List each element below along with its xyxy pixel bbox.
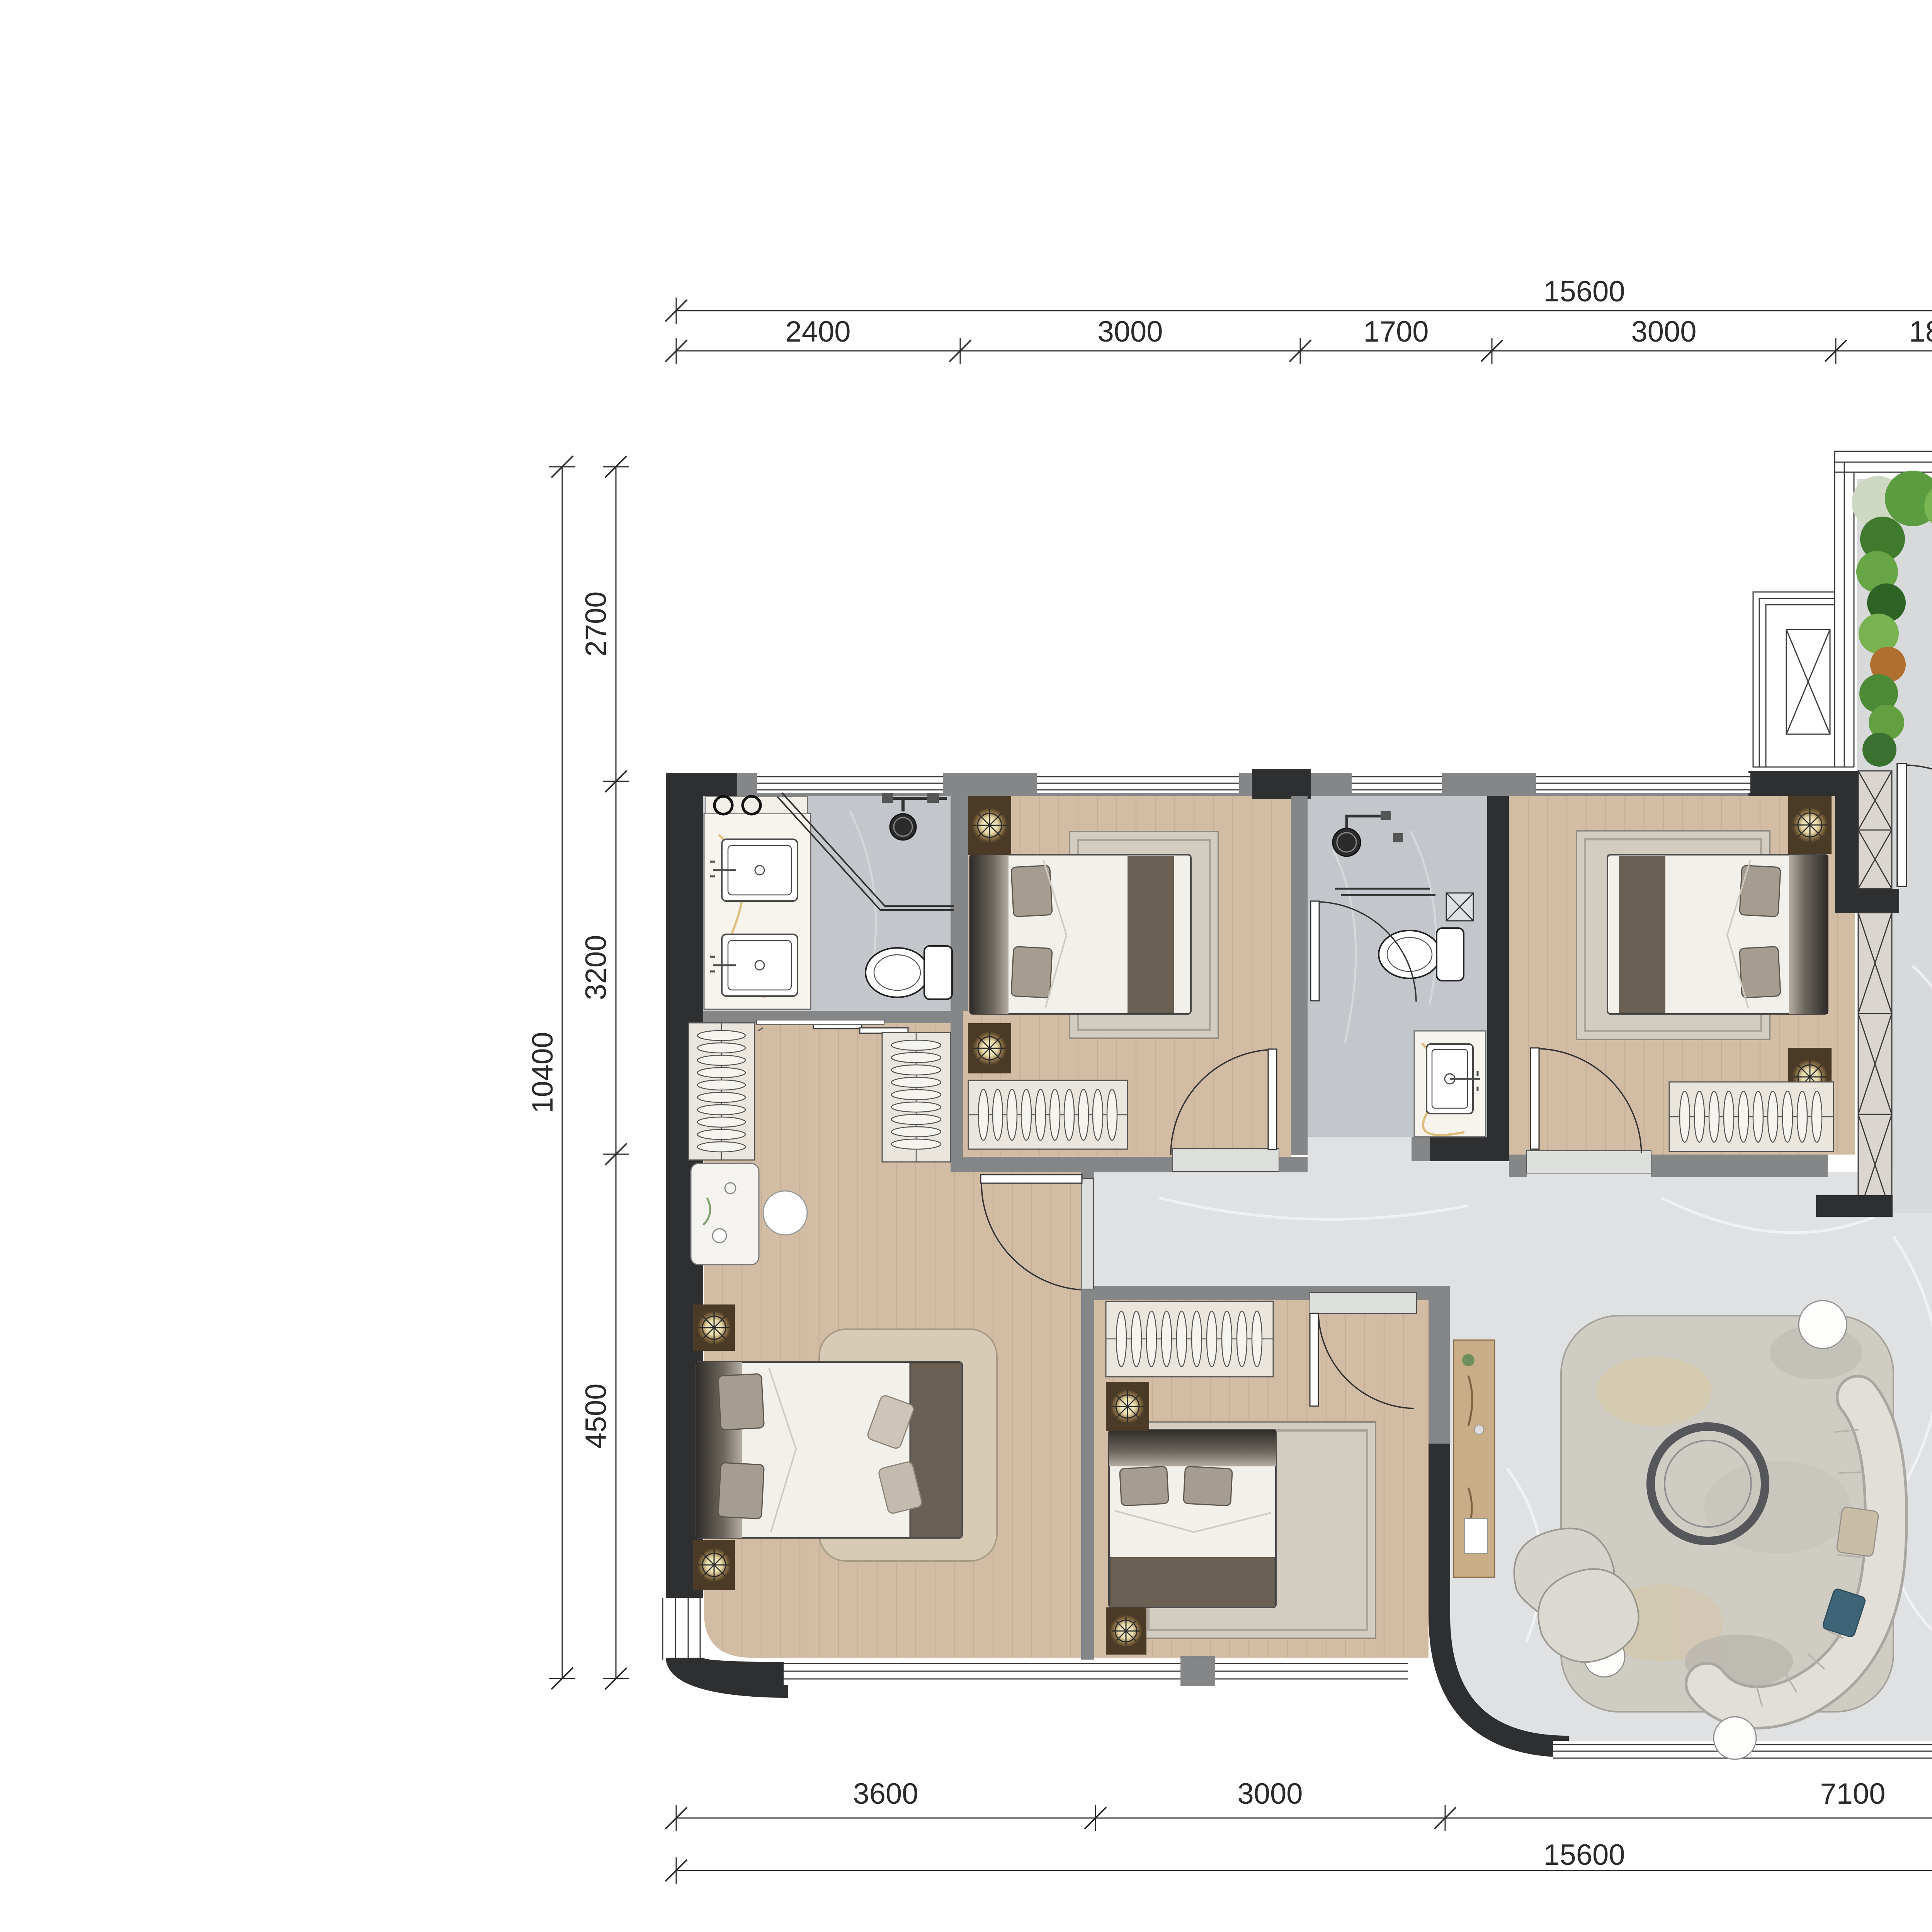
svg-text:2400: 2400 xyxy=(785,315,850,348)
svg-text:1850: 1850 xyxy=(1909,315,1932,348)
svg-text:3000: 3000 xyxy=(1631,315,1696,348)
svg-text:1700: 1700 xyxy=(1363,315,1429,348)
svg-text:7100: 7100 xyxy=(1820,1777,1885,1810)
svg-text:15600: 15600 xyxy=(1543,275,1625,308)
svg-text:4500: 4500 xyxy=(580,1383,612,1449)
svg-text:15600: 15600 xyxy=(1543,1838,1625,1871)
svg-text:3600: 3600 xyxy=(853,1777,918,1810)
svg-text:3200: 3200 xyxy=(580,935,612,1000)
svg-text:3000: 3000 xyxy=(1097,315,1163,348)
svg-text:10400: 10400 xyxy=(526,1032,559,1113)
svg-text:2700: 2700 xyxy=(580,591,612,656)
svg-text:3000: 3000 xyxy=(1237,1777,1303,1810)
